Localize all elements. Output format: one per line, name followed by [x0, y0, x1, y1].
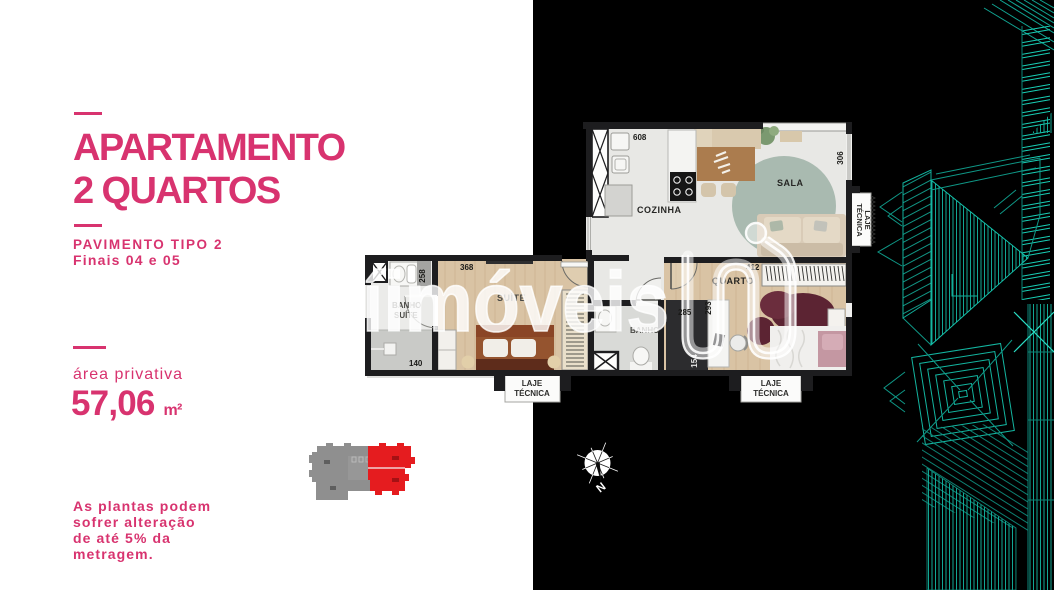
svg-text:íimóveis: íimóveis	[362, 255, 669, 349]
svg-text:TÉCNICA: TÉCNICA	[753, 389, 789, 398]
svg-text:608: 608	[633, 133, 647, 142]
svg-text:SALA: SALA	[777, 178, 804, 188]
svg-text:306: 306	[836, 151, 845, 165]
svg-text:285: 285	[678, 308, 692, 317]
svg-text:TÉCNICA: TÉCNICA	[514, 389, 550, 398]
svg-text:COZINHA: COZINHA	[637, 205, 682, 215]
svg-text:TÉCNICA: TÉCNICA	[855, 203, 864, 237]
svg-text:LAJE: LAJE	[761, 379, 782, 388]
svg-text:N: N	[594, 481, 608, 496]
svg-text:293: 293	[704, 301, 713, 315]
svg-text:LAJE: LAJE	[522, 379, 543, 388]
svg-text:140: 140	[409, 359, 423, 368]
